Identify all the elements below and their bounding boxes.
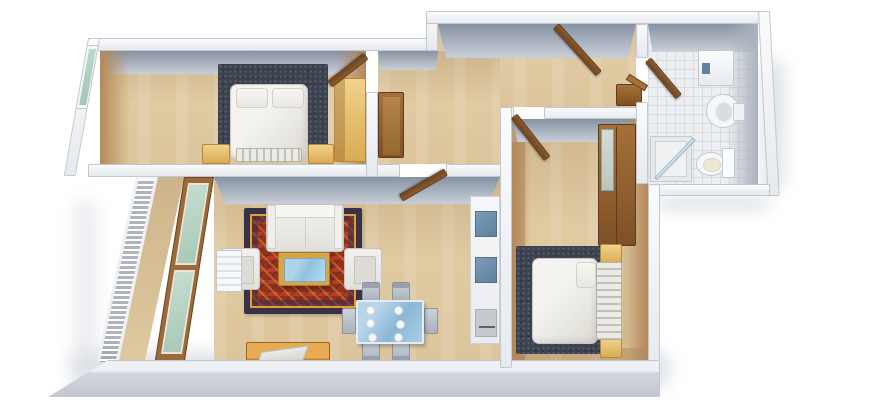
sofa-armrest [267,205,276,249]
wall-bathroom-west-upper [636,24,648,58]
wall-bathroom-west-lower [636,102,648,184]
apartment-3d-floor-plan [0,0,870,420]
dining-chair [392,282,410,302]
sink-wall-mount [733,103,745,121]
bedroom-1-nightstand [202,144,230,164]
shelf-handle [479,326,495,328]
coat-cabinet-front [383,97,400,155]
window-glass-pane [161,270,195,354]
shadow-left [74,200,98,360]
bedroom-1-headboard [236,148,302,162]
bedroom-2-pillow [576,262,596,288]
wall-mid-horizontal-left [88,164,400,177]
pedestal-sink [706,94,740,128]
washing-machine [698,50,734,86]
sofa-backrest [267,205,343,218]
armchair-seat [354,256,376,284]
dining-chair [362,342,380,362]
hallway-north-wall-face [438,24,636,58]
coffee-table [278,252,330,286]
outer-wall-east [648,184,660,372]
shelf-blue-panel [475,211,497,237]
bedroom-1-west-wall-face [100,51,130,164]
living-room-north-wall-face [214,177,500,204]
bedroom-2-headboard [596,262,622,340]
shadow-annex-bottom [655,196,770,210]
wardrobe-door-split [616,127,617,245]
bedroom-2-nightstand [600,244,622,264]
outer-wall-west [64,38,100,176]
hallway-left-north-wall-face [378,51,438,70]
corner-shower [650,136,692,182]
living-room-shelving-unit [470,196,500,344]
outer-wall-bottom [48,360,660,397]
dining-table [356,300,424,344]
plate [394,333,403,342]
plate [366,306,375,315]
window-glass-pane [175,183,209,265]
bedroom-1-wardrobe [334,78,366,162]
plate [366,319,375,328]
wall-bedroom-1-east [366,92,378,177]
bedroom-1-nightstand [308,144,334,164]
plate [368,333,377,342]
sink-bowl [714,101,734,123]
chair-back [363,283,379,288]
bedroom-1-window [75,45,98,109]
radiator [216,250,242,292]
dining-chair [342,308,356,334]
dining-chair [424,308,438,334]
bedroom-1-pillow [236,88,268,108]
wall-bathroom-south [648,184,770,196]
washing-machine-door [702,63,710,74]
wardrobe-mirror-panel [601,129,614,191]
toilet-seat [703,158,721,172]
outer-wall-top-left [88,38,436,51]
sofa-cushion-split [305,218,306,249]
outer-wall-top-right [426,11,770,24]
toilet-tank [722,148,735,178]
bedroom-2-nightstand [600,338,622,358]
bedroom-1-pillow [272,88,304,108]
plate [394,306,403,315]
sofa [266,204,344,252]
dining-chair [362,282,380,302]
hallway-coat-cabinet [378,92,404,158]
coffee-table-glass-top [284,258,326,282]
shelf-gray-panel [475,309,497,337]
wall-bedroom-2-west [500,107,512,368]
wall-bedroom-2-north-right [544,107,648,119]
chair-back [393,283,409,288]
plate [396,320,405,329]
window-glass [79,49,96,105]
shelf-blue-panel [475,257,497,283]
bedroom-2-wardrobe [598,124,636,246]
dining-chair [392,342,410,362]
sofa-armrest [334,205,343,249]
